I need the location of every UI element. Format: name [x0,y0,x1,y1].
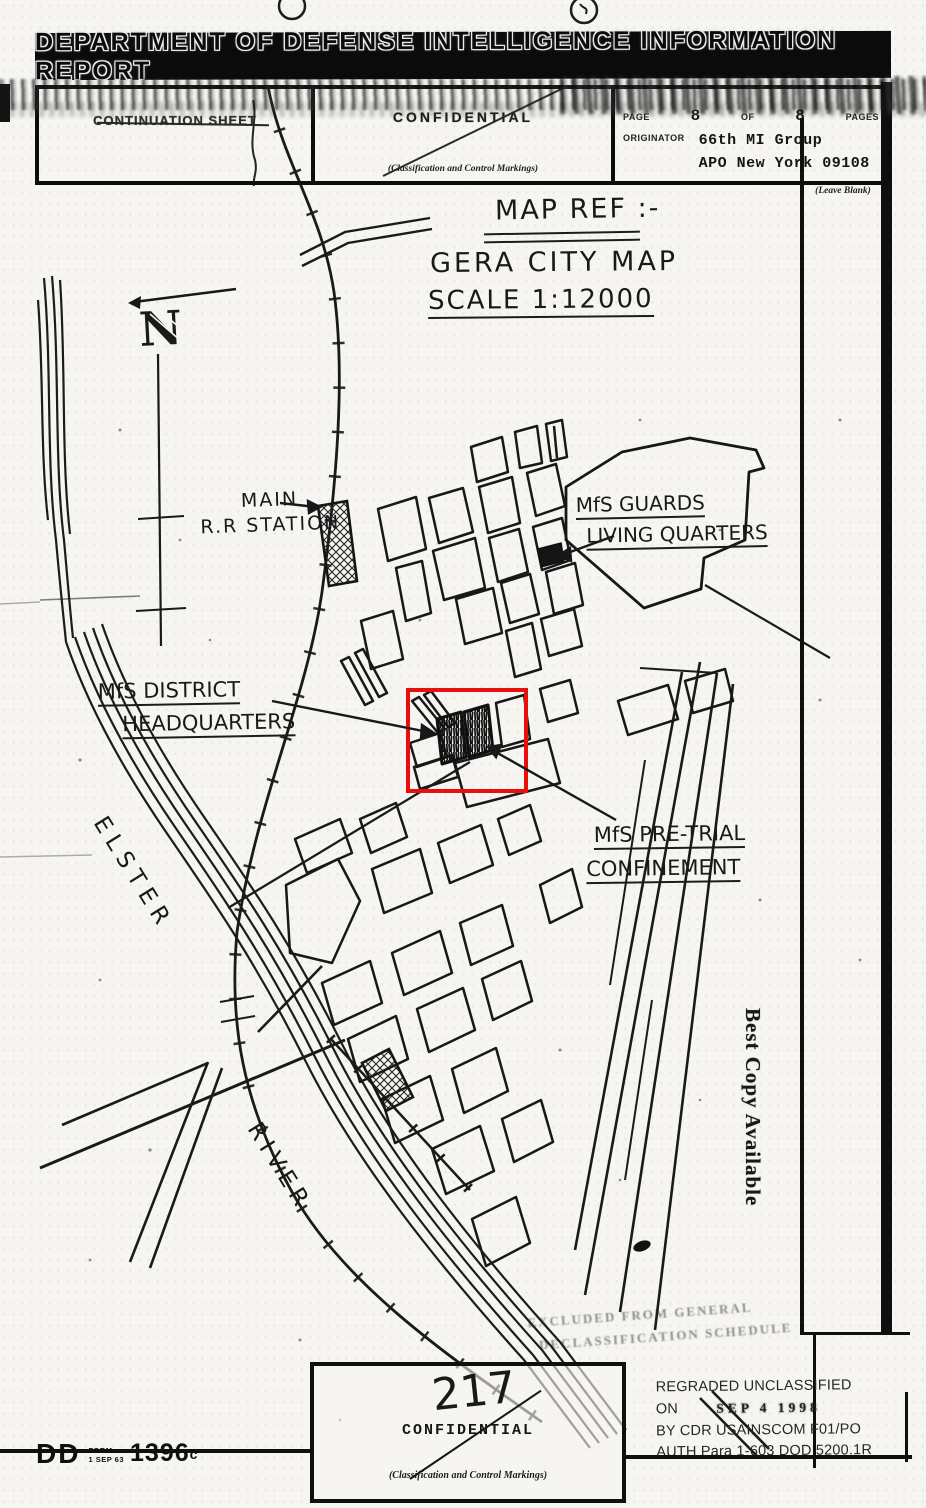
label-mfs-guards: MfS GUARDS LIVING QUARTERS [575,486,768,552]
originator-row: ORIGINATOR 66th MI Group APO New York 09… [623,129,879,176]
map-subtitle: GERA CITY MAP [430,246,678,279]
label-mfs-headquarters: MfS DISTRICT HEADQUARTERS [97,672,295,741]
top-road [300,218,432,266]
continuation-sheet-cell: CONTINUATION SHEET [39,89,315,181]
originator-value: 66th MI Group APO New York 09108 [699,129,870,176]
of-label: OF [741,112,755,122]
bottom-rule-left [0,1449,312,1453]
leave-blank-label: (Leave Blank) [802,186,884,196]
label-mfs-pretrial: MfS PRE-TRIAL CONFINEMENT [594,817,746,886]
map-scale: SCALE 1:12000 [428,284,654,316]
column-rule [800,118,804,1332]
scan-lines [0,602,92,857]
pages-label: PAGES [846,112,879,122]
footer-classification-caption: (Classification and Control Markings) [314,1470,622,1481]
punch-holes [279,0,597,23]
regraded-on: ON [656,1401,678,1417]
document-page: N DEPARTMENT OF DEFENSE INTELLIGENCE INF… [0,0,926,1508]
hatched-building [362,1049,413,1111]
gera-city-map-drawing: N [0,0,926,1508]
regraded-date: SEP 4 1998 [716,1399,821,1415]
bottom-rule-right [624,1455,912,1459]
continuation-sheet-label: CONTINUATION SHEET [39,113,311,128]
page-row: PAGE 8 OF 8 PAGES [623,107,879,125]
regraded-by: BY CDR USAINSCOM F01/PO [656,1418,918,1442]
north-label: N [138,301,184,358]
form-header: CONTINUATION SHEET CONFIDENTIAL (Classif… [35,85,891,185]
handwritten-page-number: 217 [430,1362,519,1421]
form-number: 1396 [130,1440,190,1468]
label-rr-station: MAIN R.R STATION [199,486,341,540]
form-number-block: DD FORM 1 SEP 63 1396 c [36,1440,197,1468]
classification-caption: (Classification and Control Markings) [315,164,611,174]
regraded-stamp: REGRADED UNCLASSIFIED ON SEP 4 1998 BY C… [656,1375,919,1465]
page-total: 8 [795,107,805,125]
footer-classification-box: 217 CONFIDENTIAL (Classification and Con… [310,1362,626,1503]
north-arrow: N [128,289,236,358]
report-banner: DEPARTMENT OF DEFENSE INTELLIGENCE INFOR… [35,31,891,80]
originator-address: APO New York 09108 [699,155,870,172]
best-copy-watermark: Best Copy Available [740,1008,765,1253]
report-banner-title: DEPARTMENT OF DEFENSE INTELLIGENCE INFOR… [35,25,891,85]
footer-classification: CONFIDENTIAL [314,1422,622,1439]
page-current: 8 [691,107,701,125]
regraded-line1: REGRADED UNCLASSIFIED [656,1375,918,1399]
form-prefix: DD [36,1440,80,1468]
page-right-border [881,82,892,1335]
map-ref-title: MAP REF :- [495,193,661,227]
edge-ink-mark [0,84,10,122]
page-originator-cell: PAGE 8 OF 8 PAGES ORIGINATOR 66th MI Gro… [615,89,887,181]
river-bridge [220,996,255,1022]
originator-unit: 66th MI Group [699,132,823,149]
regraded-auth: AUTH Para 1-603 DOD 5200.1R [656,1440,918,1464]
column-bottom-rule [800,1332,910,1335]
page-label: PAGE [623,112,650,122]
originator-label: ORIGINATOR [623,133,685,176]
classification-cell: CONFIDENTIAL (Classification and Control… [315,89,615,181]
classification-label: CONFIDENTIAL [315,109,611,125]
ink-blob [632,1238,652,1254]
